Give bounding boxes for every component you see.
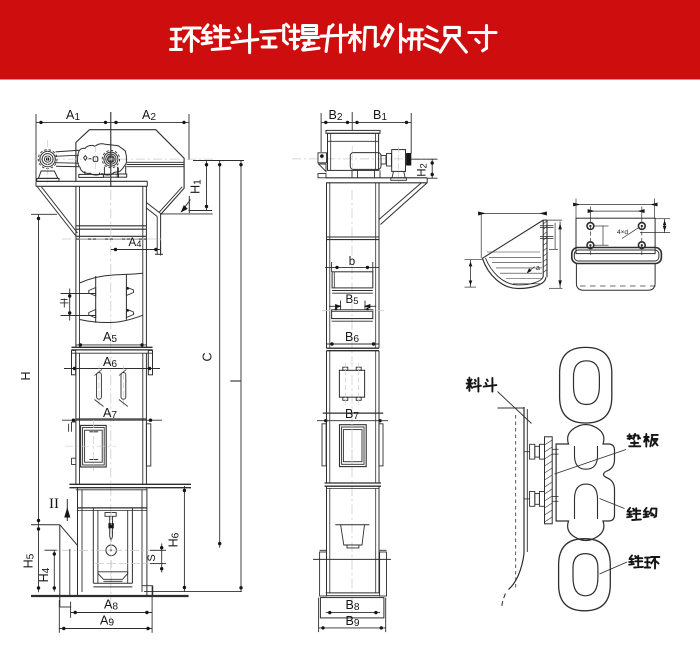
svg-text:S: S: [146, 554, 158, 561]
svg-text:B5: B5: [346, 294, 359, 306]
svg-text:H: H: [19, 371, 33, 380]
svg-text:4×d: 4×d: [617, 229, 628, 236]
svg-text:II: II: [49, 496, 59, 512]
svg-text:a: a: [536, 265, 540, 272]
svg-text:A4: A4: [129, 237, 142, 249]
svg-text:C: C: [201, 352, 215, 361]
svg-text:H2: H2: [417, 163, 429, 177]
svg-text:b: b: [349, 256, 355, 268]
